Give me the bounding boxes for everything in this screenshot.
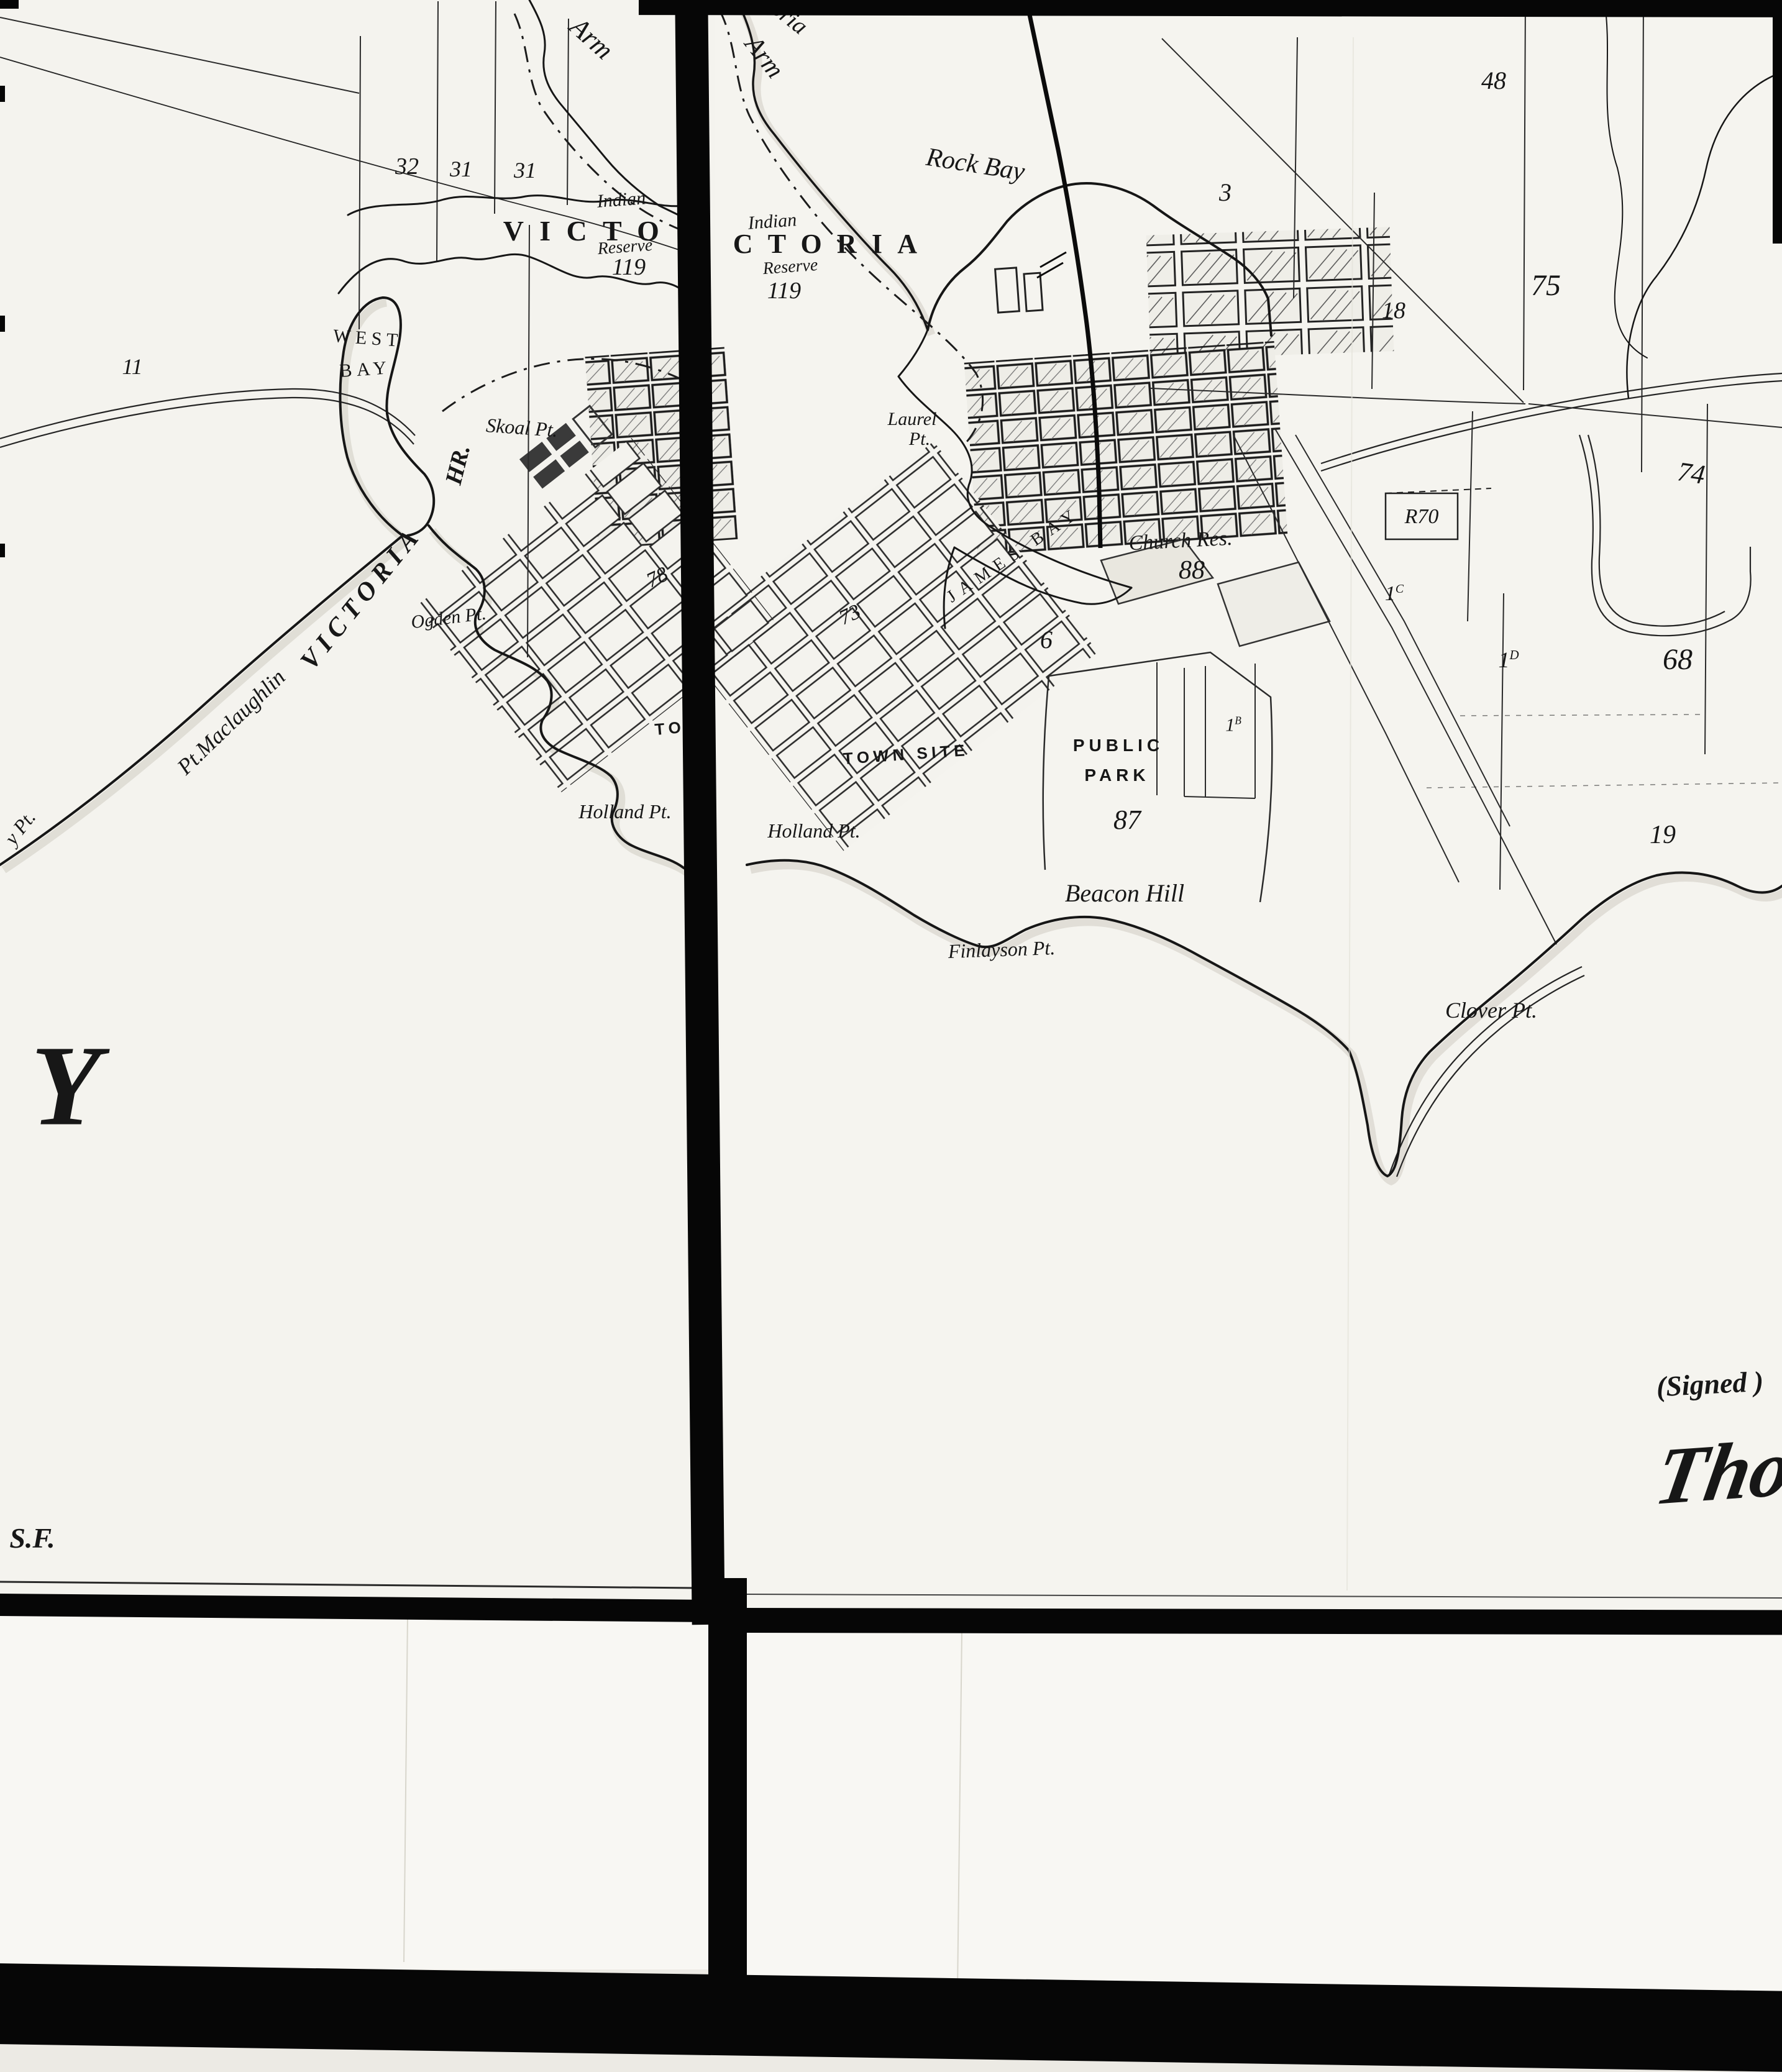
label-section-75: 75 xyxy=(1531,271,1561,301)
film-edge-tick-3 xyxy=(0,544,5,557)
label-reserve-right: Reserve xyxy=(762,257,818,278)
label-section-11: 11 xyxy=(122,355,142,378)
downtown-small-blocks xyxy=(964,341,1288,556)
label-signed: (Signed ) xyxy=(1656,1367,1765,1402)
label-signature-thos: Thos xyxy=(1650,1425,1782,1518)
label-lot-1c: 1C xyxy=(1385,583,1404,605)
label-section-74: 74 xyxy=(1676,458,1707,489)
label-section-32: 32 xyxy=(395,155,419,178)
film-mask-top-left-nub xyxy=(0,0,19,9)
label-laurel-pt-line2: Pt. xyxy=(909,430,930,449)
label-reserve-number-right: 119 xyxy=(767,279,801,303)
label-skoal-pt: Skoal Pt. xyxy=(485,415,558,440)
label-bay: BAY xyxy=(339,358,392,381)
label-victoria-right-sheet: CTORIA xyxy=(733,230,932,258)
film-mask-bottom-fill xyxy=(0,2013,1782,2033)
label-holland-pt-right: Holland Pt. xyxy=(767,821,860,841)
label-big-letter-y: Y xyxy=(30,1029,101,1144)
label-park: PARK xyxy=(1084,767,1149,784)
label-town-site-clipped: TO xyxy=(654,719,686,737)
downtown-hatched-blocks xyxy=(1146,227,1394,360)
film-mask-vertical-divider-bottom xyxy=(708,1578,747,2038)
scanned-map-page: Arm 32 31 31 11 VICTO Indian Reserve 119… xyxy=(0,0,1782,2033)
label-section-87: 87 xyxy=(1113,806,1141,834)
label-clover-pt: Clover Pt. xyxy=(1445,999,1537,1021)
label-laurel-pt-line1: Laurel xyxy=(888,410,937,429)
label-west: WEST xyxy=(332,327,403,350)
film-edge-tick-1 xyxy=(0,86,5,102)
film-mask-right-strip xyxy=(1773,0,1782,244)
label-section-48: 48 xyxy=(1481,68,1506,93)
label-initials-sf: S.F. xyxy=(9,1524,55,1553)
label-section-31a: 31 xyxy=(450,158,472,180)
label-lot-1b: 1B xyxy=(1225,716,1241,735)
label-section-18: 18 xyxy=(1382,299,1405,322)
film-edge-tick-2 xyxy=(0,316,5,332)
film-mask-top xyxy=(639,0,1782,17)
label-section-88: 88 xyxy=(1179,557,1205,583)
label-beacon-hill: Beacon Hill xyxy=(1065,881,1184,906)
label-section-31b: 31 xyxy=(514,159,536,181)
label-public: PUBLIC xyxy=(1073,737,1164,754)
label-section-6: 6 xyxy=(1040,628,1053,652)
label-reserve-number-left: 119 xyxy=(612,255,646,279)
label-indian-left: Indian xyxy=(596,189,646,211)
film-mask-horizontal-right xyxy=(746,1608,1782,1635)
label-holland-pt-left: Holland Pt. xyxy=(578,801,671,821)
label-reserve-r70: R70 xyxy=(1405,506,1439,527)
label-finlayson-pt: Finlayson Pt. xyxy=(948,938,1055,961)
label-section-68: 68 xyxy=(1663,645,1693,675)
label-section-19: 19 xyxy=(1650,822,1676,848)
label-section-3: 3 xyxy=(1219,180,1231,205)
label-lot-1d: 1D xyxy=(1498,649,1519,671)
